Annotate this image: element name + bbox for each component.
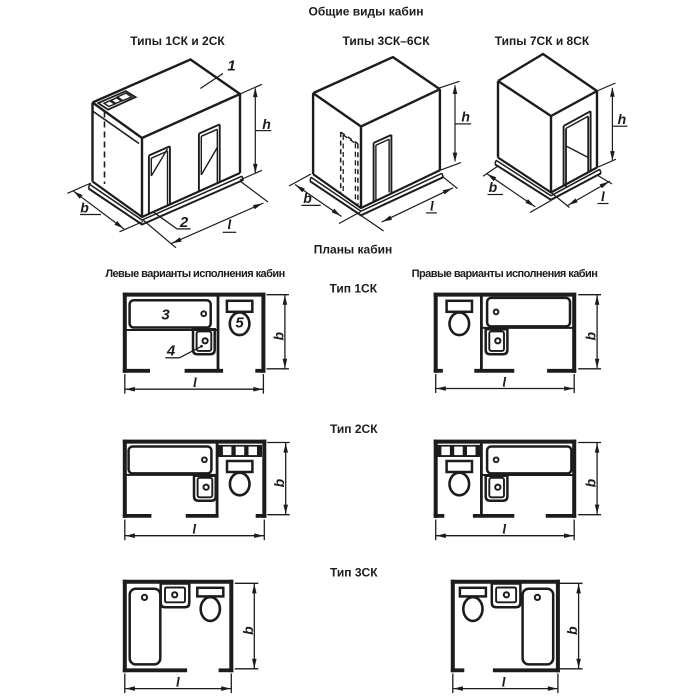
svg-text:l: l <box>502 675 506 690</box>
svg-text:l: l <box>601 190 605 205</box>
svg-text:b: b <box>240 626 256 635</box>
svg-text:Общие виды кабин: Общие виды кабин <box>309 5 424 19</box>
svg-text:Типы 7СК и 8СК: Типы 7СК и 8СК <box>495 34 590 48</box>
svg-text:b: b <box>583 332 599 341</box>
svg-text:b: b <box>303 190 312 206</box>
svg-text:Тип 3СК: Тип 3СК <box>330 566 378 580</box>
svg-text:b: b <box>583 478 599 487</box>
svg-text:Тип 1СК: Тип 1СК <box>330 282 378 296</box>
svg-text:Типы 3СК–6СК: Типы 3СК–6СК <box>342 34 430 48</box>
svg-text:l: l <box>430 200 434 215</box>
svg-text:l: l <box>502 523 506 538</box>
svg-text:4: 4 <box>166 343 176 360</box>
svg-text:h: h <box>461 109 470 125</box>
svg-text:l: l <box>193 376 197 391</box>
svg-text:h: h <box>618 111 627 127</box>
svg-text:b: b <box>270 332 286 341</box>
svg-text:b: b <box>564 626 580 635</box>
svg-text:Типы 1СК и 2СК: Типы 1СК и 2СК <box>130 34 225 48</box>
svg-text:Тип 2СК: Тип 2СК <box>330 422 378 436</box>
svg-text:h: h <box>262 116 271 132</box>
svg-text:1: 1 <box>227 58 235 75</box>
svg-text:Правые варианты исполнения каб: Правые варианты исполнения кабин <box>412 268 598 280</box>
svg-text:l: l <box>502 375 506 390</box>
svg-text:Левые варианты исполнения каби: Левые варианты исполнения кабин <box>105 268 284 280</box>
svg-text:Планы кабин: Планы кабин <box>314 243 392 257</box>
svg-text:b: b <box>489 179 498 195</box>
svg-text:l: l <box>176 675 180 690</box>
svg-text:3: 3 <box>161 306 170 323</box>
svg-text:l: l <box>192 523 196 538</box>
svg-text:l: l <box>228 218 232 233</box>
svg-text:5: 5 <box>235 314 244 331</box>
svg-text:b: b <box>80 200 89 216</box>
svg-text:b: b <box>271 478 287 487</box>
